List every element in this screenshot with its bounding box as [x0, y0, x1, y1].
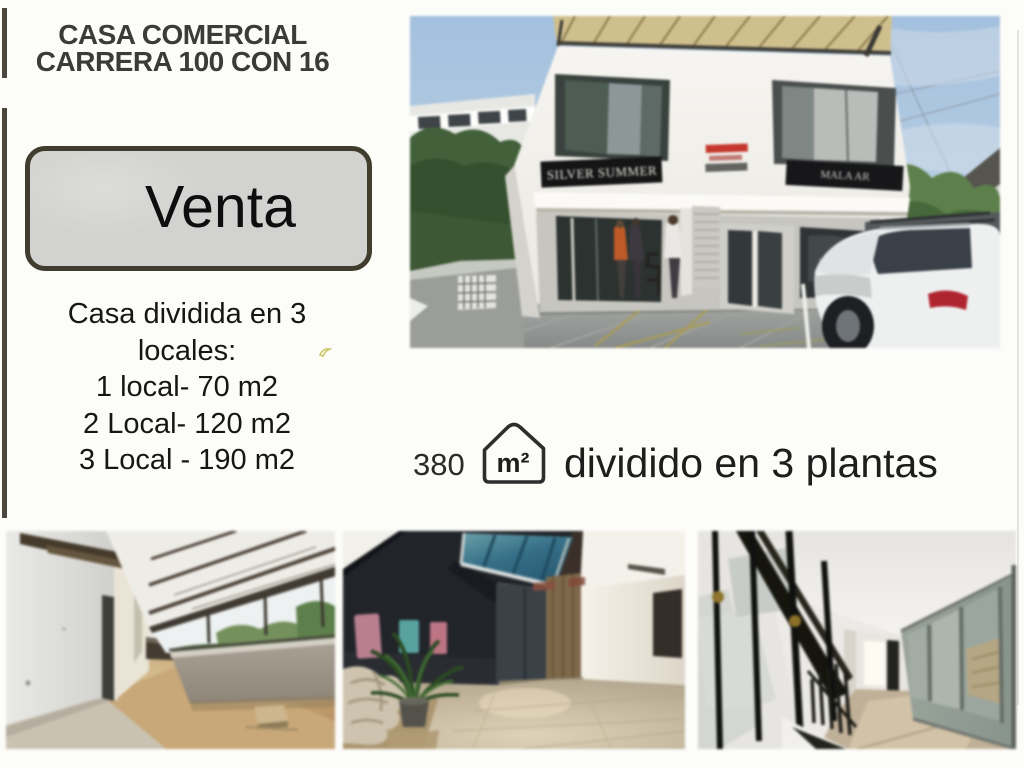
svg-text:m²: m² — [497, 448, 530, 478]
